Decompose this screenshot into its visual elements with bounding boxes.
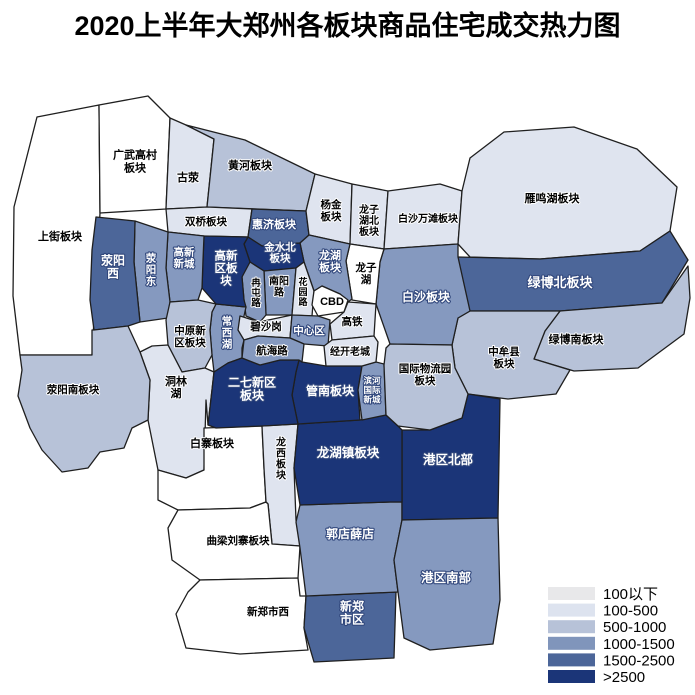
region-label-xinzheng-west: 新郑市西 (247, 605, 289, 618)
region-label-gaoxin-xincheng: 高新新城 (174, 245, 195, 270)
region-label-lvbo-bei: 绿博北板块 (527, 275, 593, 290)
region-label-binhe: 滨河国际新城 (363, 376, 381, 405)
region-label-yangjin: 杨金板块 (321, 198, 342, 223)
region-label-guodian-xuedian: 郭店薛店 (326, 526, 374, 541)
region-label-longhu: 龙湖板块 (318, 248, 342, 274)
region-label-huanghe: 黄河板块 (228, 158, 273, 172)
legend-swatch-3 (548, 637, 595, 650)
region-label-gangqu-bei: 港区北部 (423, 452, 474, 467)
region-label-zhongxin-qu: 中心区 (293, 324, 325, 337)
region-label-xingyang-nan: 荥阳南板块 (47, 383, 100, 396)
legend-label-5: >2500 (603, 669, 645, 686)
region-label-zhongyuan-xinqu: 中原新区板块 (174, 324, 206, 349)
region-label-shuangqiao: 双桥板块 (184, 215, 227, 228)
region-label-hanghai-lu: 航海路 (256, 344, 288, 357)
region-shangjie (13, 105, 100, 355)
region-label-longxi: 龙西板块 (275, 435, 287, 481)
region-label-huiji: 惠济板块 (252, 217, 297, 231)
region-label-jingkai-laocheng: 经开老城 (330, 345, 370, 358)
region-label-guannan: 管南板块 (306, 383, 355, 398)
region-label-baisha: 白沙板块 (402, 289, 451, 304)
region-guodian-xuedian (296, 502, 402, 596)
legend-label-4: 1500-2500 (603, 652, 675, 669)
legend-label-2: 500-1000 (603, 619, 666, 636)
region-label-longzihu-bei: 龙子湖北板块 (358, 203, 380, 238)
region-label-shangjie: 上街板块 (38, 229, 83, 243)
region-longhu-zhen (294, 415, 402, 505)
legend-label-0: 100以下 (603, 586, 658, 603)
region-label-xingyang-dong: 荥阳东 (146, 252, 157, 288)
region-label-rantun-lu: 冉屯路 (251, 277, 261, 309)
region-label-xinzheng-city: 新郑市区 (340, 599, 364, 627)
region-label-longhu-zhen: 龙湖镇板块 (316, 445, 380, 460)
legend-swatch-2 (548, 620, 595, 633)
region-label-baizhai: 白寨板块 (190, 436, 235, 450)
heatmap: 上街板块广武高村板块古荥黄河板块双桥板块惠济板块杨金板块龙子湖北板块白沙万滩板块… (0, 0, 695, 695)
legend-swatch-5 (548, 670, 595, 683)
legend-swatch-4 (548, 653, 595, 666)
legend-swatch-1 (548, 604, 595, 617)
region-label-cbd: CBD (320, 296, 344, 308)
legend-swatch-0 (548, 587, 595, 600)
region-label-quliang-liuzhai: 曲梁刘寨板块 (207, 534, 270, 547)
region-label-changxihu: 常西湖 (222, 315, 233, 351)
region-label-gangqu-nan: 港区南部 (421, 570, 472, 585)
region-label-bisha-gang: 碧沙岗 (249, 320, 282, 333)
region-label-gaotie: 高铁 (342, 315, 363, 328)
heatmap-page: 2020上半年大郑州各板块商品住宅成交热力图 上街板块广武高村板块古荥黄河板块双… (0, 0, 695, 695)
region-label-huayuan-lu: 花园路 (298, 276, 308, 307)
legend-label-3: 1000-1500 (603, 636, 675, 653)
region-label-baisha-wantan: 白沙万滩板块 (398, 212, 459, 225)
region-label-yanminghu: 雁鸣湖板块 (525, 191, 581, 205)
region-label-lvbo-nan: 绿博南板块 (549, 332, 605, 346)
region-label-guying: 古荥 (177, 170, 199, 184)
legend-label-1: 100-500 (603, 603, 658, 620)
